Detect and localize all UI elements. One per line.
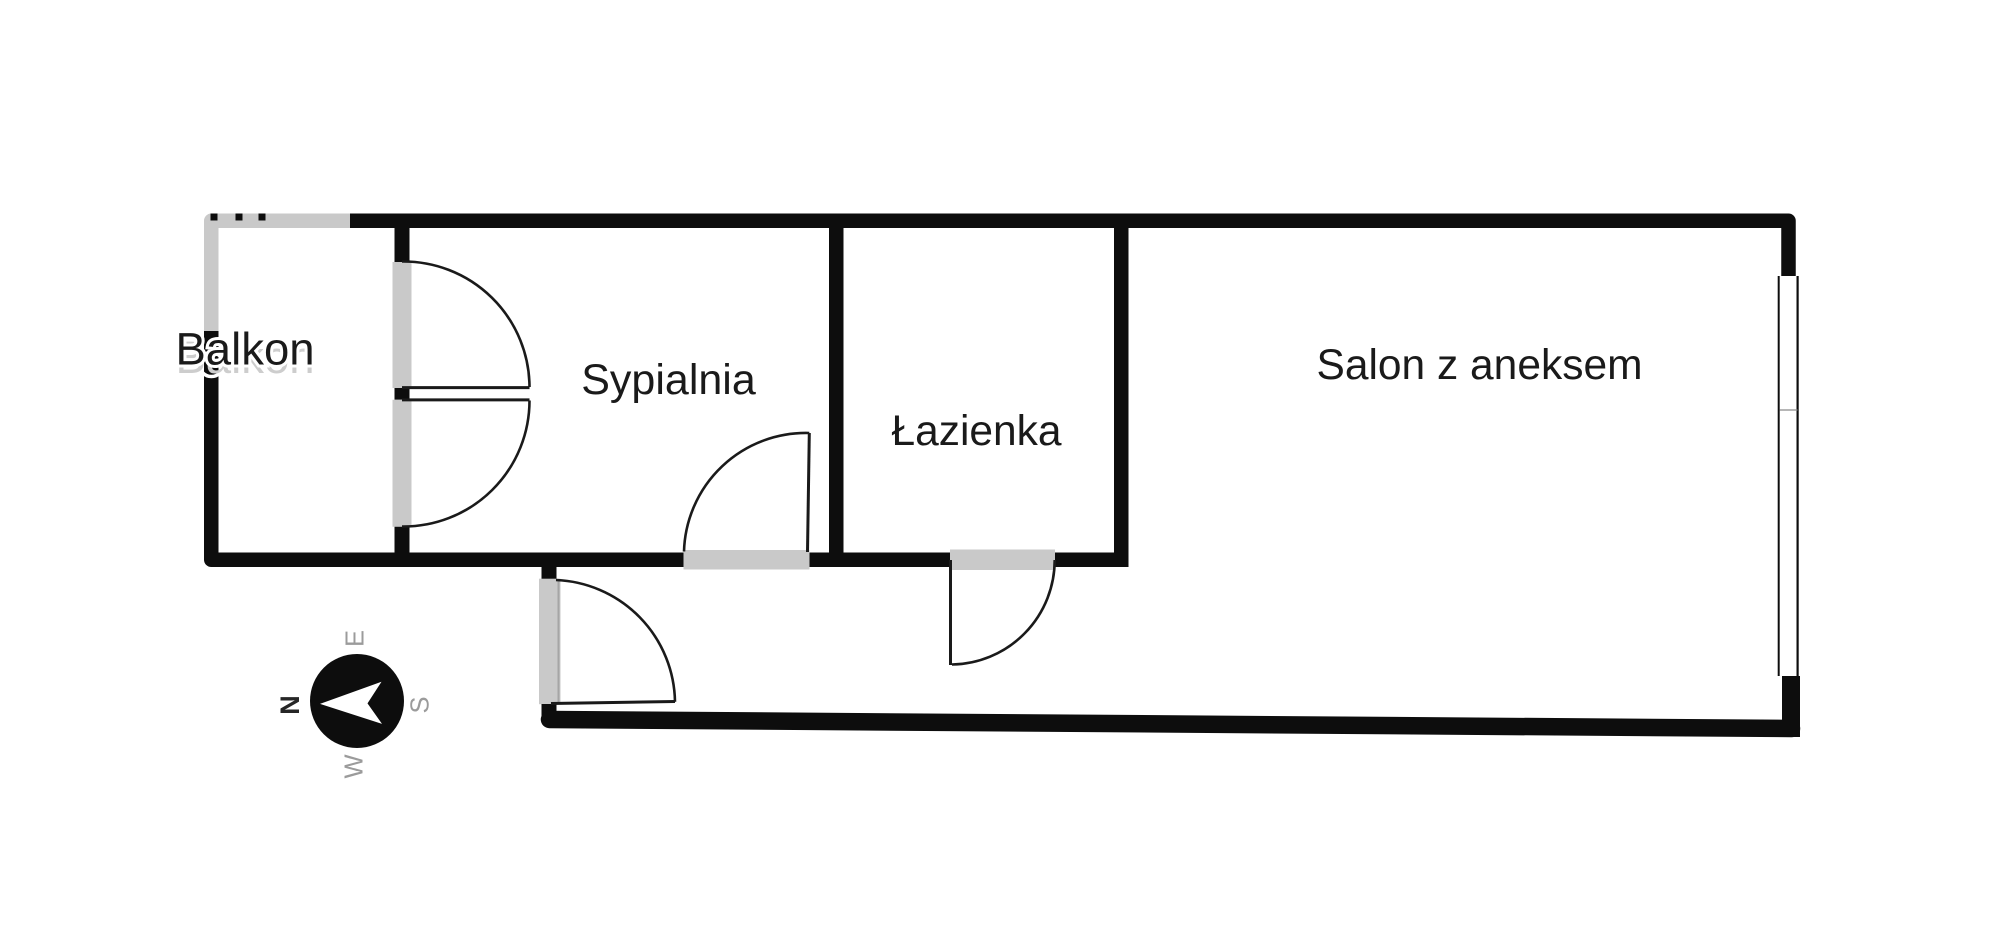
svg-text:Łazienka: Łazienka bbox=[891, 408, 1061, 455]
svg-text:Salon z aneksem: Salon z aneksem bbox=[1316, 342, 1642, 389]
svg-text:Balkon: Balkon bbox=[175, 324, 314, 375]
svg-text:Sypialnia: Sypialnia bbox=[581, 356, 756, 404]
svg-text:S: S bbox=[407, 696, 435, 713]
svg-text:N: N bbox=[275, 695, 305, 715]
svg-text:E: E bbox=[342, 630, 370, 647]
svg-text:W: W bbox=[341, 754, 369, 778]
